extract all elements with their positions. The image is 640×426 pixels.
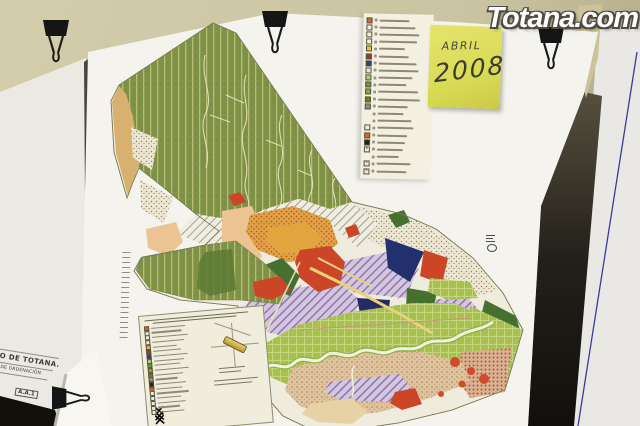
legend-label-placeholder [379, 48, 405, 51]
inset-location-diagram [205, 316, 267, 391]
legend-color-swatch [365, 89, 371, 95]
legend-symbol-icon [374, 55, 377, 58]
legend-symbol-icon [373, 98, 376, 101]
legend-label-placeholder [379, 70, 419, 73]
legend-label-placeholder [379, 62, 417, 65]
totana-com-watermark: Totana.com [486, 2, 638, 35]
legend-row: ✕ [360, 167, 430, 176]
legend-color-swatch [365, 82, 371, 88]
sticky-note: ABRIL 2008 [428, 25, 503, 109]
legend-label-placeholder [377, 141, 405, 144]
legend-label-placeholder [377, 156, 399, 158]
legend-color-swatch [365, 103, 371, 109]
legend-color-swatch [366, 46, 372, 52]
approval-stamp [485, 233, 498, 263]
legend-label-placeholder [378, 105, 408, 108]
legend-color-swatch [366, 60, 372, 66]
legend-symbol-icon [373, 76, 376, 79]
diagram-yellow-bar [222, 336, 247, 354]
legend-symbol-icon [373, 105, 376, 108]
legend-symbol-icon [374, 26, 377, 29]
legend-label-placeholder [377, 163, 411, 166]
legend-label-placeholder [380, 19, 410, 22]
legend-label-placeholder [379, 26, 415, 29]
legend-label-placeholder [377, 127, 413, 130]
legend-symbol-icon [372, 141, 375, 144]
legend-symbol-icon [371, 170, 374, 173]
legend-color-swatch [366, 38, 372, 44]
legend-symbol-icon [374, 69, 377, 72]
legend-symbol-icon [374, 33, 377, 36]
legend-symbol-icon [372, 126, 375, 129]
legend-symbol-icon [374, 40, 377, 43]
legend-color-swatch [364, 125, 370, 131]
legend-color-swatch: ✕ [363, 168, 369, 174]
legend-symbol-icon [374, 62, 377, 65]
legend-symbol-icon [373, 112, 376, 115]
inset-color-swatch: ✕ [151, 410, 156, 415]
legend-color-swatch [365, 67, 371, 73]
legend-label-placeholder [378, 113, 404, 116]
legend-label-placeholder [378, 77, 412, 80]
photo-of-totana-map-board: Totana.com [0, 0, 640, 426]
legend-color-swatch [364, 132, 370, 138]
legend-label-placeholder [379, 34, 419, 37]
zone-lobe-inner-dark [197, 249, 236, 296]
legend-symbol-icon [372, 119, 375, 122]
sticky-note-month: ABRIL [442, 39, 502, 53]
legend-label-placeholder [379, 41, 417, 44]
legend-label-placeholder [377, 149, 403, 152]
legend-label-placeholder [377, 120, 411, 123]
scene-graphic [0, 0, 640, 426]
legend-label-placeholder [378, 84, 406, 87]
legend-color-swatch: ✕ [364, 146, 370, 152]
inset-legend-box: ✕ ✕ ✕ [138, 305, 274, 426]
legend-color-swatch [365, 96, 371, 102]
legend-label-placeholder [376, 170, 406, 173]
map-legend-strip: ✕ ✕ ✕ [360, 13, 433, 179]
legend-color-swatch: ✕ [364, 161, 370, 167]
legend-color-swatch [366, 24, 372, 30]
legend-color-swatch [365, 74, 371, 80]
legend-label-placeholder [379, 55, 409, 58]
legend-symbol-icon [374, 47, 377, 50]
sticky-note-year: 2008 [434, 51, 501, 88]
legend-color-swatch [366, 53, 372, 59]
inset-legend-rows: ✕ ✕ ✕ [143, 321, 213, 415]
legend-label-placeholder [378, 91, 418, 94]
legend-symbol-icon [375, 19, 378, 22]
legend-symbol-icon [372, 155, 375, 158]
legend-color-swatch [366, 31, 372, 37]
legend-color-swatch [364, 139, 370, 145]
legend-symbol-icon [373, 90, 376, 93]
legend-symbol-icon [373, 83, 376, 86]
legend-symbol-icon [372, 148, 375, 151]
legend-symbol-icon [372, 162, 375, 165]
legend-symbol-icon [372, 134, 375, 137]
legend-label-placeholder [377, 134, 407, 137]
legend-label-placeholder [378, 98, 420, 101]
legend-color-swatch [367, 17, 373, 23]
